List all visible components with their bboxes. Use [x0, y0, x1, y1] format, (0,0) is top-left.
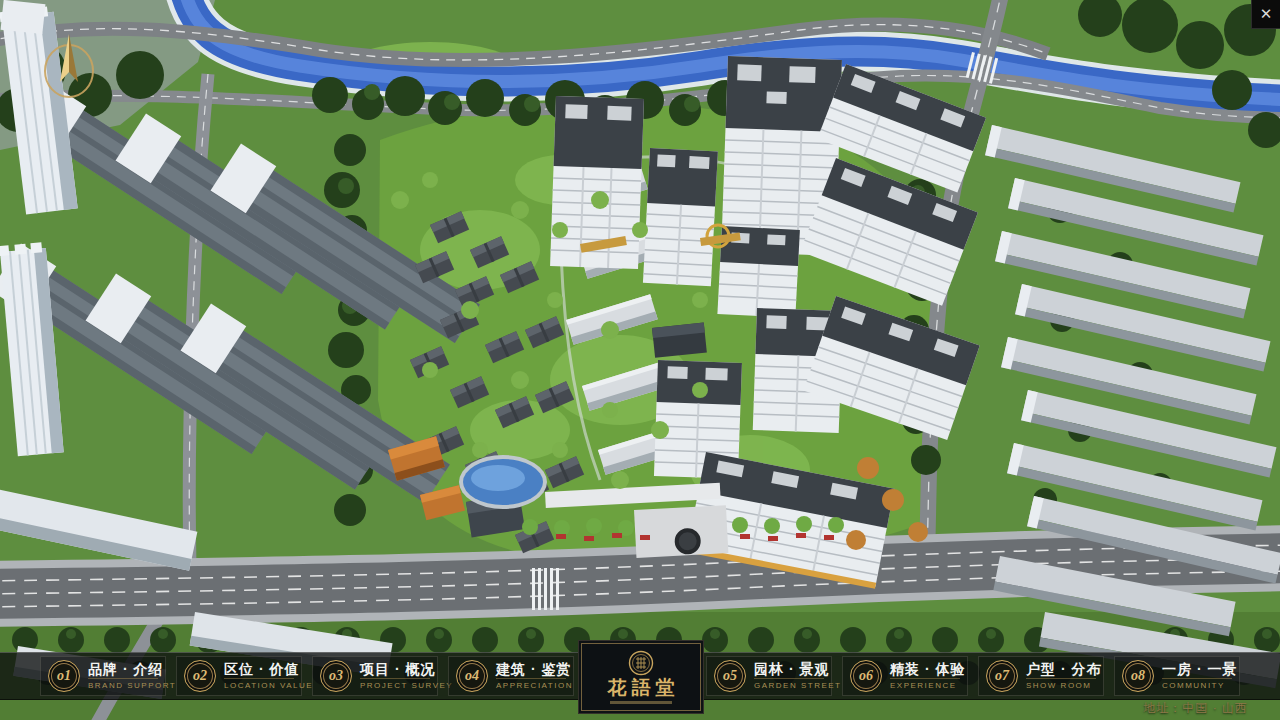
nav-item-label: 精装 · 体验 EXPERIENCE [890, 662, 960, 691]
nav-number-badge: o7 [986, 660, 1018, 692]
nav-item-architecture[interactable]: o4 建筑 · 鉴赏 APPRECIATION [448, 656, 574, 696]
nav-number-badge: o3 [320, 660, 352, 692]
nav-number-badge: o4 [456, 660, 488, 692]
nav-item-title: 精装 · 体验 [890, 662, 960, 677]
nav-item-title: 园林 · 景观 [754, 662, 824, 677]
nav-item-floorplan-distribution[interactable]: o7 户型 · 分布 SHOW ROOM [978, 656, 1104, 696]
nav-item-garden-landscape[interactable]: o5 园林 · 景观 GARDEN STREET [706, 656, 832, 696]
nav-item-title: 品牌 · 介绍 [88, 662, 158, 677]
nav-item-title: 项目 · 概况 [360, 662, 430, 677]
nav-number-badge: o5 [714, 660, 746, 692]
nav-item-subtitle: LOCATION VALUE [224, 678, 294, 690]
nav-number-badge: o1 [48, 660, 80, 692]
nav-item-location-value[interactable]: o2 区位 · 价值 LOCATION VALUE [176, 656, 302, 696]
app-window: ✕ o1 品牌 · 介绍 BRAND SUPPORT o2 区位 · 价值 LO… [0, 0, 1280, 720]
nav-item-subtitle: SHOW ROOM [1026, 678, 1096, 690]
nav-item-subtitle: PROJECT SURVEY [360, 678, 430, 690]
nav-item-interior-experience[interactable]: o6 精装 · 体验 EXPERIENCE [842, 656, 968, 696]
nav-item-title: 一房 · 一景 [1162, 662, 1232, 677]
nav-group-right: o5 园林 · 景观 GARDEN STREET o6 精装 · 体验 EXPE… [706, 656, 1240, 696]
nav-item-label: 建筑 · 鉴赏 APPRECIATION [496, 662, 566, 691]
project-logo-panel[interactable]: 花語堂 [578, 640, 704, 714]
project-address: 地址：中国 · 山西 [1143, 700, 1248, 717]
nav-item-label: 品牌 · 介绍 BRAND SUPPORT [88, 662, 158, 691]
nav-item-label: 项目 · 概况 PROJECT SURVEY [360, 662, 430, 691]
nav-item-title: 户型 · 分布 [1026, 662, 1096, 677]
nav-item-project-survey[interactable]: o3 项目 · 概况 PROJECT SURVEY [312, 656, 438, 696]
nav-item-subtitle: GARDEN STREET [754, 678, 824, 690]
nav-item-brand-intro[interactable]: o1 品牌 · 介绍 BRAND SUPPORT [40, 656, 166, 696]
nav-item-title: 区位 · 价值 [224, 662, 294, 677]
nav-item-title: 建筑 · 鉴赏 [496, 662, 566, 677]
close-icon: ✕ [1260, 5, 1273, 23]
nav-number-badge: o2 [184, 660, 216, 692]
nav-item-subtitle: BRAND SUPPORT [88, 678, 158, 690]
nav-group-left: o1 品牌 · 介绍 BRAND SUPPORT o2 区位 · 价值 LOCA… [40, 656, 574, 696]
nav-item-room-view[interactable]: o8 一房 · 一景 COMMUNITY [1114, 656, 1240, 696]
nav-item-subtitle: APPRECIATION [496, 678, 566, 690]
project-logo-title: 花語堂 [603, 678, 680, 697]
compass-icon [38, 26, 100, 110]
nav-item-label: 区位 · 价值 LOCATION VALUE [224, 662, 294, 691]
nav-item-subtitle: COMMUNITY [1162, 678, 1232, 690]
nav-number-badge: o6 [850, 660, 882, 692]
nav-item-label: 一房 · 一景 COMMUNITY [1162, 662, 1232, 691]
nav-item-subtitle: EXPERIENCE [890, 678, 960, 690]
close-button[interactable]: ✕ [1251, 0, 1280, 29]
nav-item-label: 园林 · 景观 GARDEN STREET [754, 662, 824, 691]
aerial-site-view[interactable] [0, 0, 1280, 720]
logo-subtitle-text [610, 701, 672, 704]
nav-item-label: 户型 · 分布 SHOW ROOM [1026, 662, 1096, 691]
nav-number-badge: o8 [1122, 660, 1154, 692]
brand-seal-icon [628, 650, 654, 676]
